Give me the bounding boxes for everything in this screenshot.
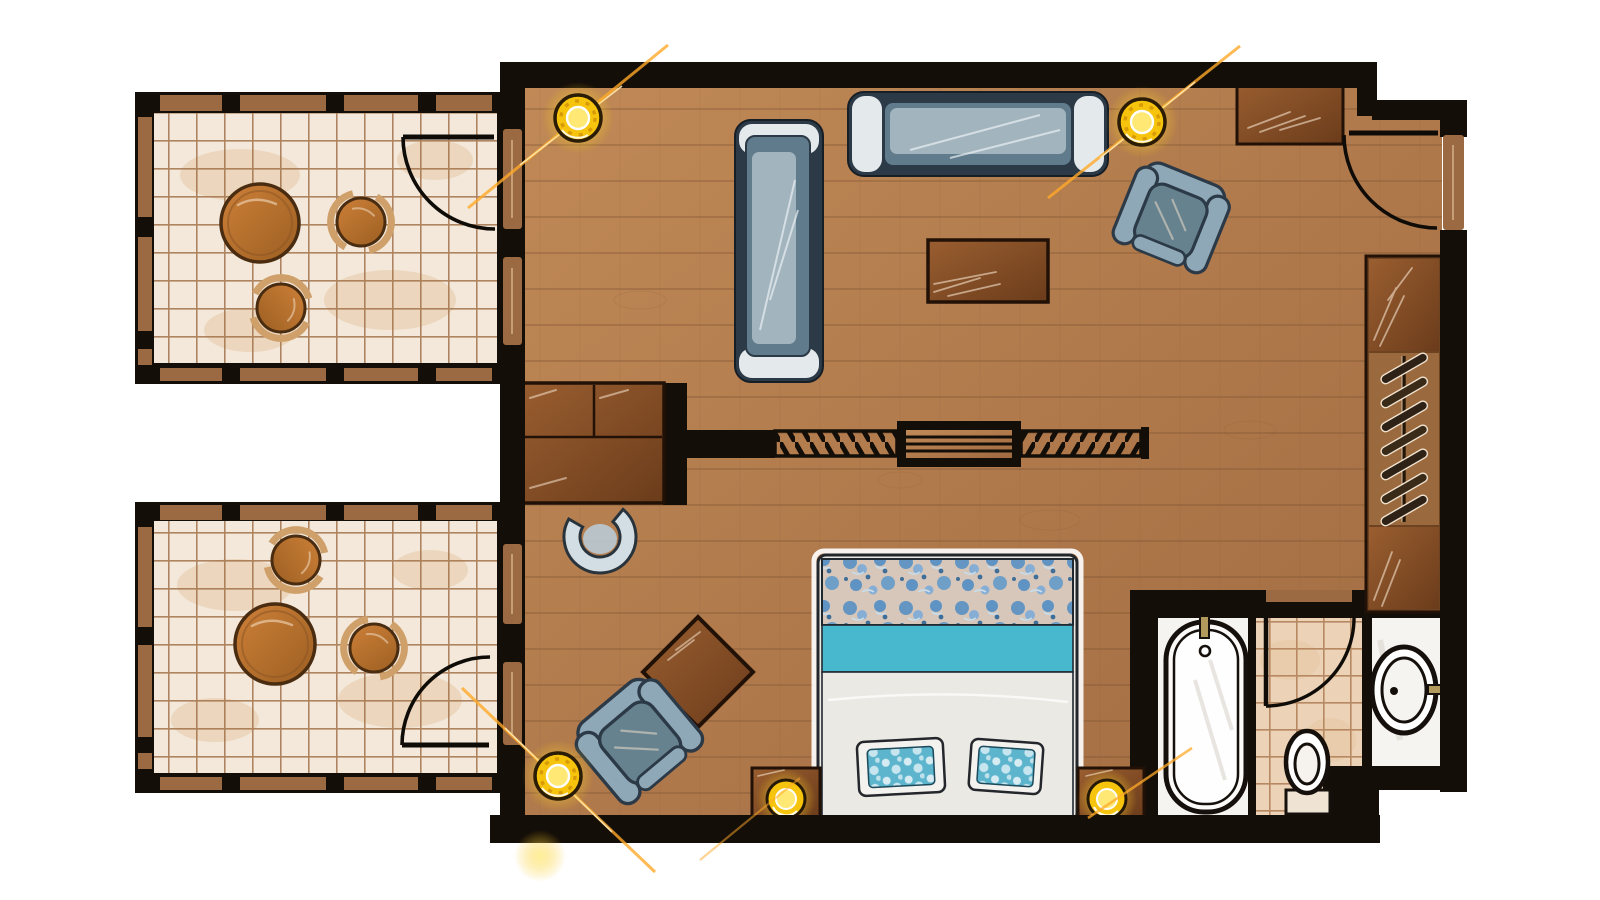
wardrobe: Wardrobe closet Clothes hangers [1366, 256, 1442, 612]
bathtub: Bathtub [1166, 616, 1246, 812]
exterior-notch-top-right [1365, 0, 1600, 100]
terrace-upper-table: Round patio table [221, 184, 299, 262]
wall-south [490, 815, 1380, 843]
floor-plan-drawing: Upper terrace patio Round patio table Pa… [0, 0, 1600, 900]
terrace-upper: Upper terrace patio Round patio table Pa… [135, 92, 500, 384]
floor-plan-stage: Upper terrace patio Round patio table Pa… [0, 0, 1600, 900]
partition-hatch-left [775, 431, 897, 456]
wardrobe-shelf-top [1369, 259, 1439, 351]
terrace-lower-tile-grid [154, 521, 497, 773]
sideboard-cabinet: Sideboard cabinet [1237, 80, 1343, 144]
wall-east [1440, 230, 1467, 792]
exterior-notch-bottom-right [1377, 790, 1600, 900]
wall-east-upper [1440, 100, 1467, 137]
double-bed: Double bed with floral runner Bed pillow… [814, 551, 1081, 825]
wc-door-lintel [1266, 590, 1352, 602]
partition-end-cap [1141, 427, 1149, 459]
bed-floral-runner [822, 559, 1073, 625]
bed-teal-band [822, 625, 1073, 672]
spot-light-bedroom [522, 740, 594, 812]
partition-beam [663, 430, 775, 458]
tub-faucet [1200, 616, 1209, 638]
desk-unit: Dresser desk [518, 383, 664, 503]
partition-hatch-right [1021, 431, 1141, 456]
terrace-lower: Lower terrace patio Round patio table Pa… [135, 502, 500, 793]
terrace-lower-table: Round patio table [235, 604, 315, 684]
wardrobe-shelf-bottom [1369, 527, 1439, 609]
coffee-table: Coffee table [928, 240, 1048, 302]
spot-light-living-right [1106, 86, 1178, 158]
spot-light-living-left [542, 82, 614, 154]
terrace-upper-tile-grid [154, 113, 497, 363]
tub-drain [1200, 646, 1210, 656]
toilet: Toilet [1286, 731, 1330, 814]
three-seat-sofa: Three-seat sofa [848, 92, 1108, 176]
chaise-sofa: Chaise sofa [735, 120, 823, 382]
